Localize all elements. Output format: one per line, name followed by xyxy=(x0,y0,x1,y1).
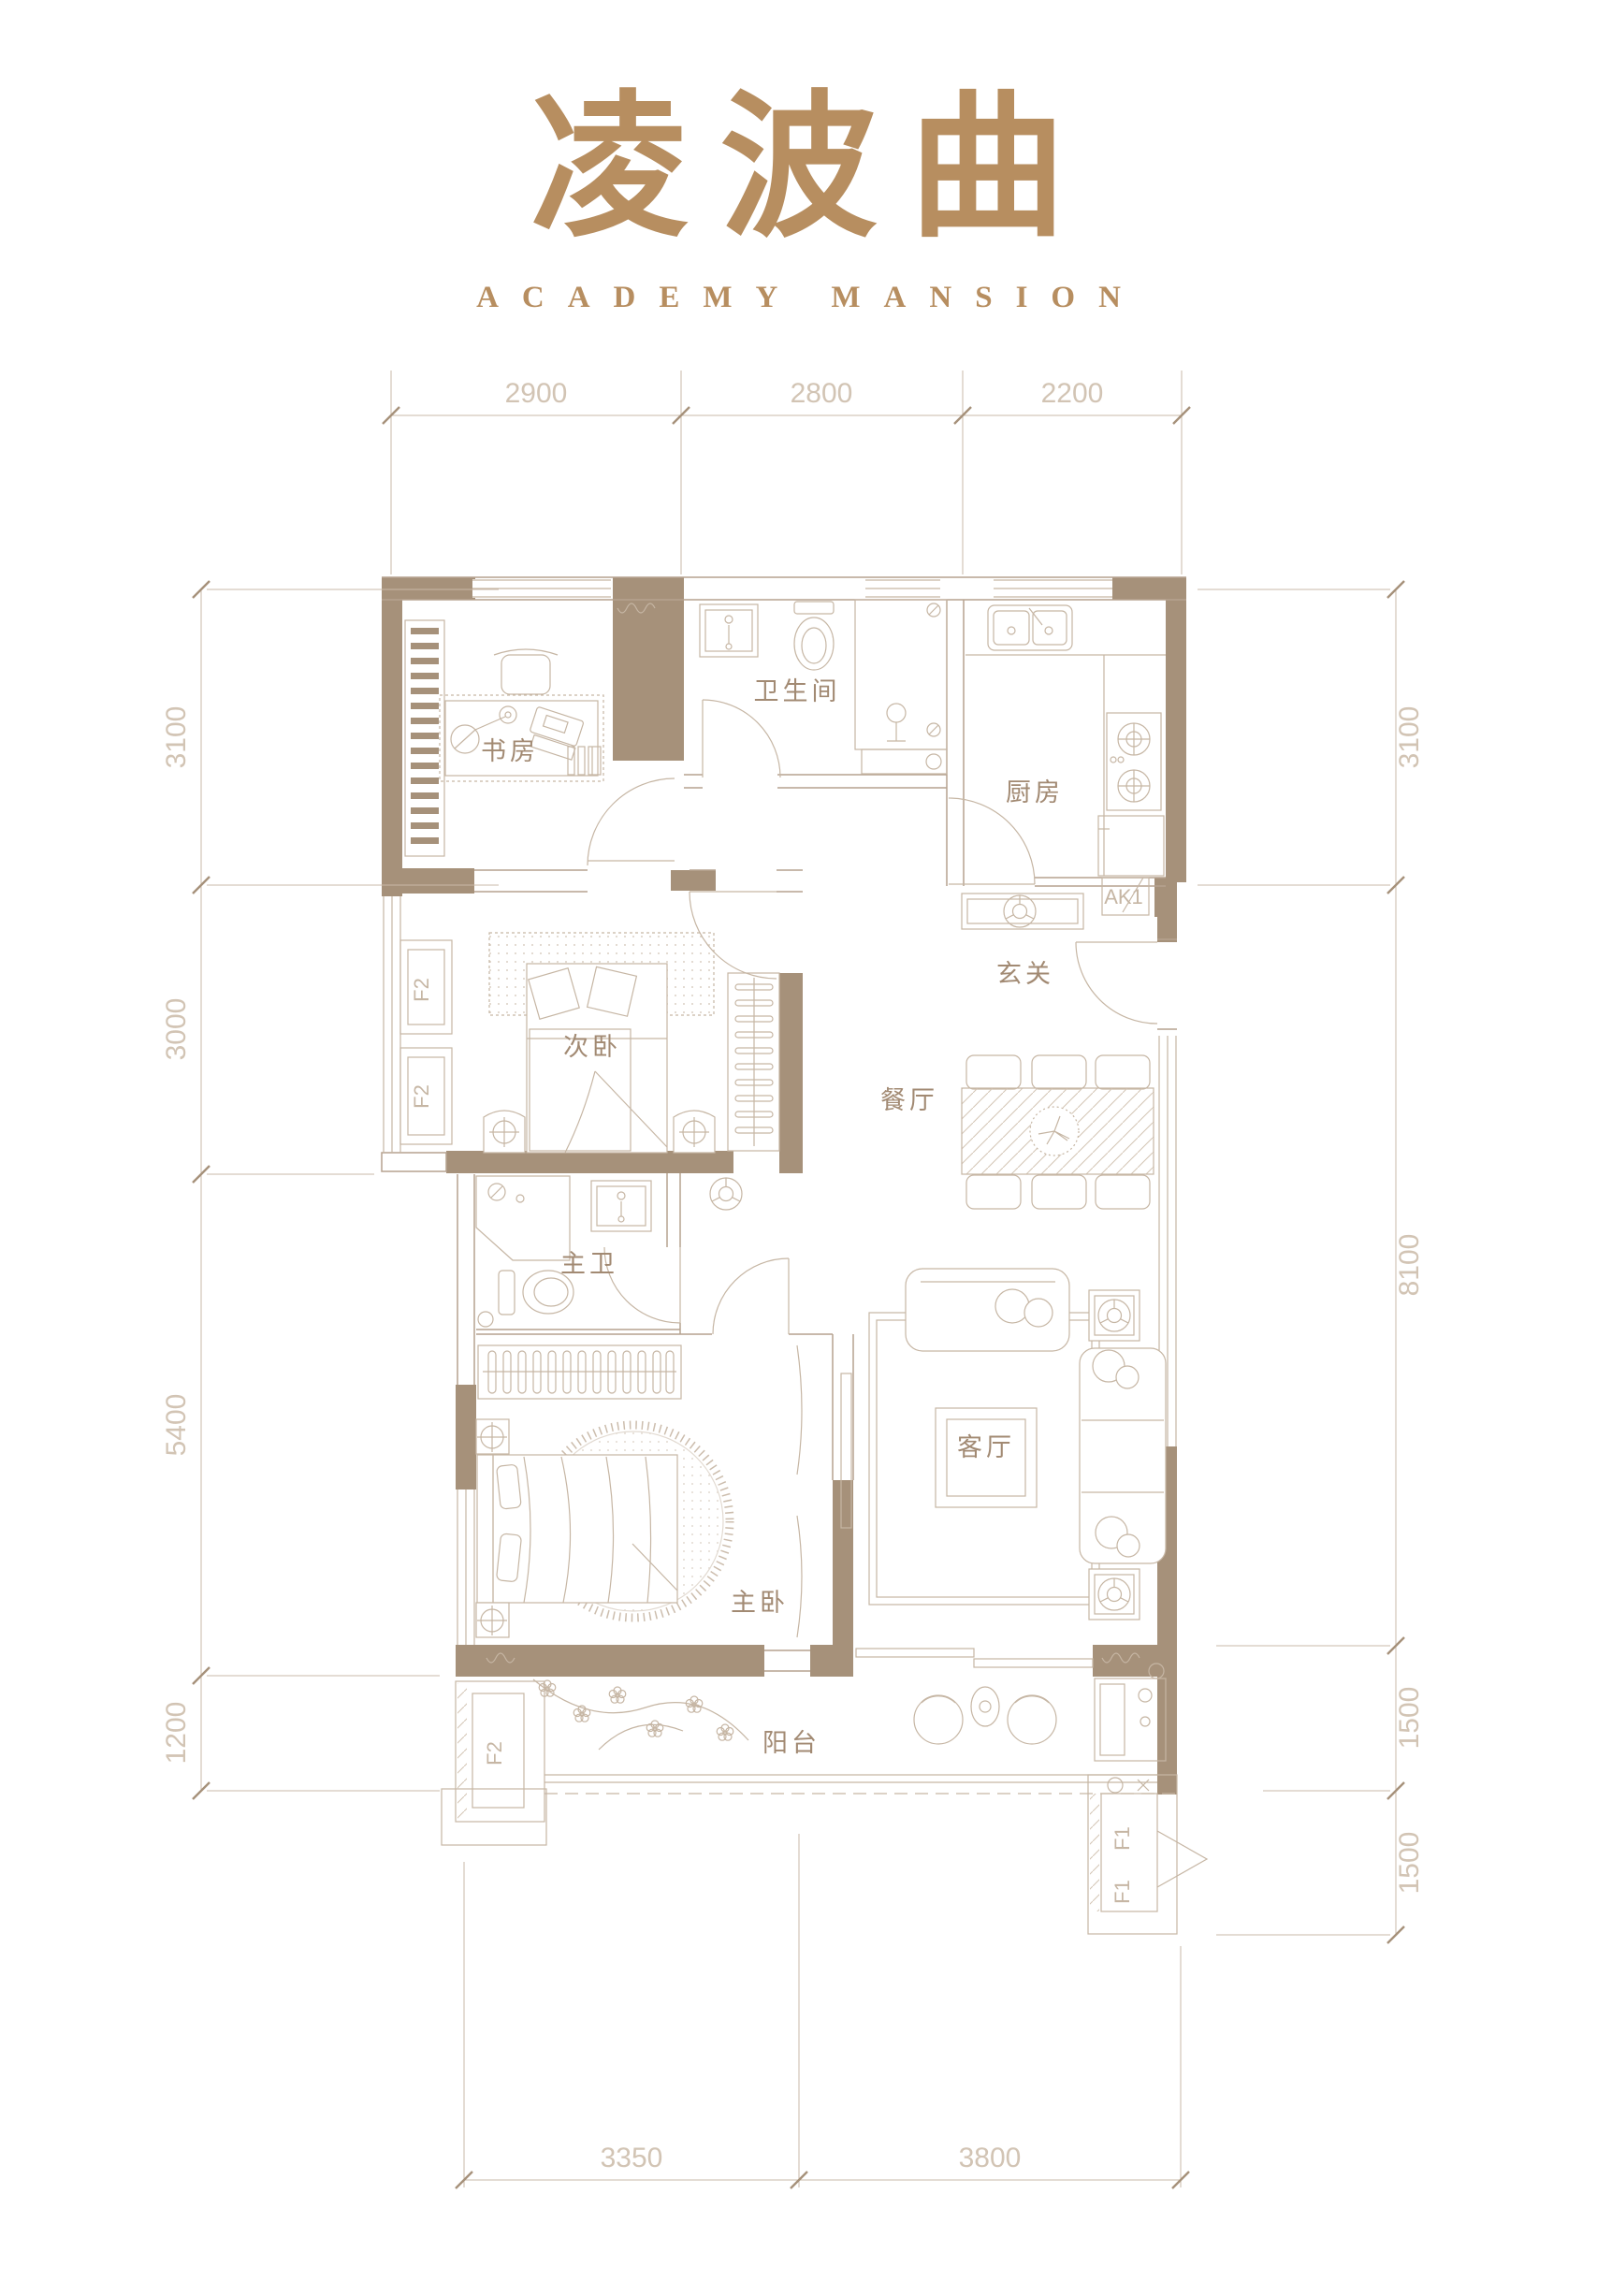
fan-icon xyxy=(1004,895,1036,927)
room-label-entry: 玄关 xyxy=(996,960,1054,989)
floor-drain-icon xyxy=(926,754,941,769)
bay-unit-f2-upper: F2 xyxy=(400,940,452,1034)
dim-left-2: 3000 xyxy=(161,998,192,1061)
desk-chair-back xyxy=(494,649,558,655)
room-kitchen: 厨房 xyxy=(965,605,1166,876)
dim-right-2: 8100 xyxy=(1394,1234,1425,1297)
balcony-cabinet xyxy=(1095,1664,1166,1761)
dim-right-1: 3100 xyxy=(1394,706,1425,769)
balcony-chairs xyxy=(914,1687,1056,1744)
bathroom-window xyxy=(865,579,940,598)
study-window xyxy=(472,579,611,598)
lounge-bench xyxy=(906,1269,1069,1351)
desk-chair xyxy=(501,655,550,694)
dimension-left: 3100 3000 5400 1200 xyxy=(161,581,499,1799)
f1-utility-unit: F1 F1 xyxy=(1088,1775,1177,1934)
room-label-master-bedroom: 主卧 xyxy=(731,1589,789,1618)
dim-left-1: 3100 xyxy=(161,706,192,769)
dim-top-1: 2900 xyxy=(505,378,568,409)
floor-drain-icon xyxy=(478,1312,493,1327)
side-table-top xyxy=(1089,1290,1140,1341)
kitchen-window xyxy=(994,579,1112,598)
bathroom-door xyxy=(703,700,780,777)
master-sink xyxy=(591,1181,651,1231)
balcony-sliding-door xyxy=(856,1649,1093,1667)
stove xyxy=(1107,713,1161,810)
dim-top-3: 2200 xyxy=(1041,378,1104,409)
sofa xyxy=(1080,1348,1166,1563)
room-label-kitchen: 厨房 xyxy=(1006,778,1064,807)
room-label-master-bath: 主卫 xyxy=(560,1250,618,1279)
kitchen-sink xyxy=(988,605,1072,650)
bookshelf-books xyxy=(411,628,439,844)
curtain-line xyxy=(797,1345,802,1475)
dim-top-2: 2800 xyxy=(791,378,853,409)
floor-plan-page: 凌波曲 ACADEMY MANSION xyxy=(0,0,1597,2296)
f2-balcony-unit: F2 xyxy=(442,1681,546,1845)
master-closet xyxy=(478,1345,681,1399)
nightstand-bottom xyxy=(476,1603,509,1637)
shower-area xyxy=(855,600,947,749)
dimension-bottom: 3350 3800 xyxy=(456,1834,1189,2188)
fan-icon xyxy=(710,1178,742,1210)
floor-plan-drawing: 书房 卫生间 xyxy=(0,0,1597,2296)
ac-unit-ak1: AK1 xyxy=(1102,878,1149,915)
dim-bottom-1: 3350 xyxy=(601,2143,663,2173)
master-bed xyxy=(477,1455,677,1603)
fridge xyxy=(1098,816,1164,876)
ak1-label: AK1 xyxy=(1104,885,1143,908)
dimension-top: 2900 2800 2200 xyxy=(383,371,1190,574)
room-label-living: 客厅 xyxy=(957,1433,1015,1462)
dim-right-3: 1500 xyxy=(1394,1687,1425,1750)
hatch-band xyxy=(457,1683,467,1820)
room-label-dining: 餐厅 xyxy=(880,1086,938,1115)
room-label-bathroom: 卫生间 xyxy=(754,677,841,706)
dining-chair xyxy=(1032,1055,1086,1089)
f2-label: F2 xyxy=(410,978,433,1002)
curtain-line xyxy=(797,1516,802,1637)
room-living: 客厅 xyxy=(841,1269,1166,1663)
f2-label: F2 xyxy=(410,1084,433,1109)
dim-bottom-2: 3800 xyxy=(959,2143,1022,2173)
f1-label: F1 xyxy=(1111,1826,1134,1851)
toilet xyxy=(794,602,834,670)
dining-plate xyxy=(1030,1107,1079,1155)
master-shower xyxy=(476,1176,570,1260)
side-table-bottom xyxy=(1089,1569,1140,1620)
balcony-plants xyxy=(533,1679,748,1750)
second-bedroom-bay-window xyxy=(384,896,400,1153)
nightstand-left xyxy=(484,1111,525,1153)
nightstand-right xyxy=(674,1111,715,1153)
dining-chair xyxy=(1096,1055,1150,1089)
bathroom-sink xyxy=(700,604,758,657)
room-label-second-bedroom: 次卧 xyxy=(563,1033,621,1062)
desk-books xyxy=(568,747,601,775)
room-bathroom: 卫生间 xyxy=(700,600,947,774)
dim-left-4: 1200 xyxy=(161,1702,192,1765)
master-bedroom-door xyxy=(713,1258,789,1334)
utility-door xyxy=(1157,1831,1207,1887)
dim-right-4: 1500 xyxy=(1394,1832,1425,1895)
f2-label: F2 xyxy=(483,1741,506,1766)
hatch-band xyxy=(1090,1794,1099,1911)
room-dining: 餐厅 xyxy=(880,1055,1154,1209)
dining-chair xyxy=(966,1175,1021,1209)
room-balcony: 阳台 xyxy=(533,1664,1177,1794)
room-master-bedroom: 主卧 xyxy=(476,1345,802,1663)
entry-door xyxy=(1076,942,1157,1024)
kitchen-door xyxy=(949,798,1035,884)
dimension-right: 3100 8100 1500 1500 xyxy=(1198,581,1425,1943)
dining-chair xyxy=(966,1055,1021,1089)
room-master-bath: 主卫 xyxy=(476,1176,651,1327)
room-entry: AK1 玄关 xyxy=(962,878,1149,989)
f1-label: F1 xyxy=(1111,1880,1134,1904)
room-label-study: 书房 xyxy=(481,737,539,766)
dim-left-3: 5400 xyxy=(161,1394,192,1457)
master-bedroom-window xyxy=(457,1489,474,1645)
room-label-balcony: 阳台 xyxy=(762,1729,820,1758)
dining-chair xyxy=(1096,1175,1150,1209)
study-door xyxy=(588,778,675,865)
bath-shelf xyxy=(862,749,947,774)
bay-unit-f2-lower: F2 xyxy=(400,1048,452,1144)
nightstand-top xyxy=(476,1419,509,1454)
dining-chair xyxy=(1032,1175,1086,1209)
wardrobe xyxy=(728,973,779,1151)
